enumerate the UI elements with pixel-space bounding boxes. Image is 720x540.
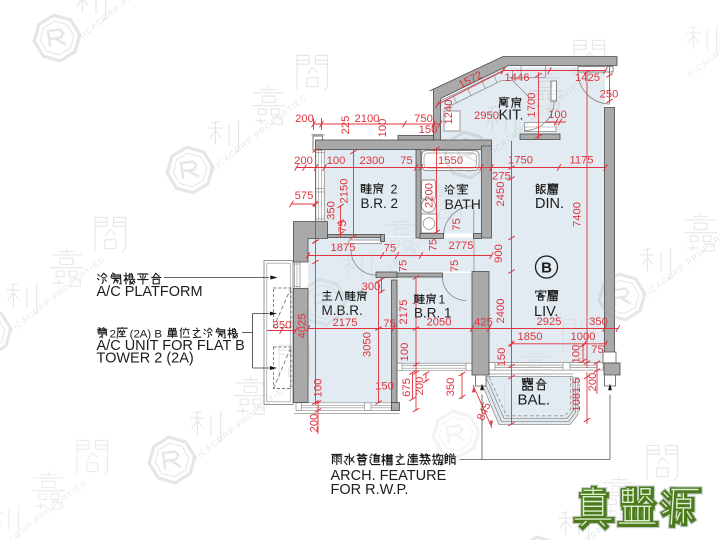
svg-text:200: 200 xyxy=(294,155,313,167)
svg-text:7400: 7400 xyxy=(572,202,584,227)
svg-text:2400: 2400 xyxy=(495,299,507,324)
svg-text:A/C PLATFORM: A/C PLATFORM xyxy=(97,284,203,300)
svg-text:150: 150 xyxy=(419,124,438,136)
svg-text:1240: 1240 xyxy=(443,100,455,125)
svg-text:575: 575 xyxy=(295,190,314,202)
svg-text:2100: 2100 xyxy=(355,113,380,125)
svg-text:B.R. 2: B.R. 2 xyxy=(361,196,399,211)
svg-text:150: 150 xyxy=(375,381,394,393)
svg-text:1175: 1175 xyxy=(569,155,593,167)
svg-text:2775: 2775 xyxy=(449,240,474,252)
svg-text:2450: 2450 xyxy=(495,182,507,207)
svg-text:1446: 1446 xyxy=(505,72,530,84)
svg-text:100: 100 xyxy=(399,343,411,362)
svg-text:2300: 2300 xyxy=(360,155,385,167)
svg-text:200: 200 xyxy=(414,377,426,396)
svg-text:350: 350 xyxy=(589,316,608,328)
svg-text:B: B xyxy=(541,260,552,277)
svg-text:1081.5: 1081.5 xyxy=(571,377,583,411)
svg-text:200: 200 xyxy=(587,373,599,392)
svg-text:75: 75 xyxy=(337,220,349,232)
svg-text:75: 75 xyxy=(400,155,412,167)
svg-text:100: 100 xyxy=(377,119,389,138)
svg-text:3050: 3050 xyxy=(362,332,374,357)
svg-text:2: 2 xyxy=(391,183,398,197)
svg-text:1875: 1875 xyxy=(331,242,356,254)
svg-text:425: 425 xyxy=(474,317,493,329)
svg-text:2175: 2175 xyxy=(398,300,410,325)
svg-text:100: 100 xyxy=(327,155,346,167)
svg-text:LIV.: LIV. xyxy=(534,304,558,320)
svg-text:100: 100 xyxy=(313,379,325,398)
svg-text:1750: 1750 xyxy=(508,155,533,167)
svg-text:KIT.: KIT. xyxy=(499,108,524,124)
svg-text:FOR R.W.P.: FOR R.W.P. xyxy=(331,482,409,498)
svg-text:75: 75 xyxy=(451,218,463,230)
svg-text:2150: 2150 xyxy=(339,179,351,204)
svg-text:200: 200 xyxy=(295,113,314,125)
svg-text:350: 350 xyxy=(273,320,292,332)
svg-text:150: 150 xyxy=(496,348,508,367)
svg-text:DIN.: DIN. xyxy=(535,196,564,212)
svg-text:75: 75 xyxy=(383,318,395,330)
svg-text:350: 350 xyxy=(326,201,338,220)
svg-text:350: 350 xyxy=(445,378,457,397)
svg-text:2200: 2200 xyxy=(424,183,436,208)
svg-text:275: 275 xyxy=(492,171,511,183)
svg-text:2950: 2950 xyxy=(474,110,499,122)
svg-text:200: 200 xyxy=(309,414,321,433)
svg-text:TOWER 2 (2A): TOWER 2 (2A) xyxy=(97,351,194,367)
svg-text:250: 250 xyxy=(600,89,619,101)
svg-text:225: 225 xyxy=(340,116,352,135)
svg-text:675: 675 xyxy=(401,378,413,397)
svg-text:1850: 1850 xyxy=(518,331,543,343)
svg-text:75: 75 xyxy=(449,260,461,272)
svg-text:1: 1 xyxy=(439,293,446,307)
svg-text:900: 900 xyxy=(493,244,505,263)
svg-text:B.R. 1: B.R. 1 xyxy=(414,306,452,321)
